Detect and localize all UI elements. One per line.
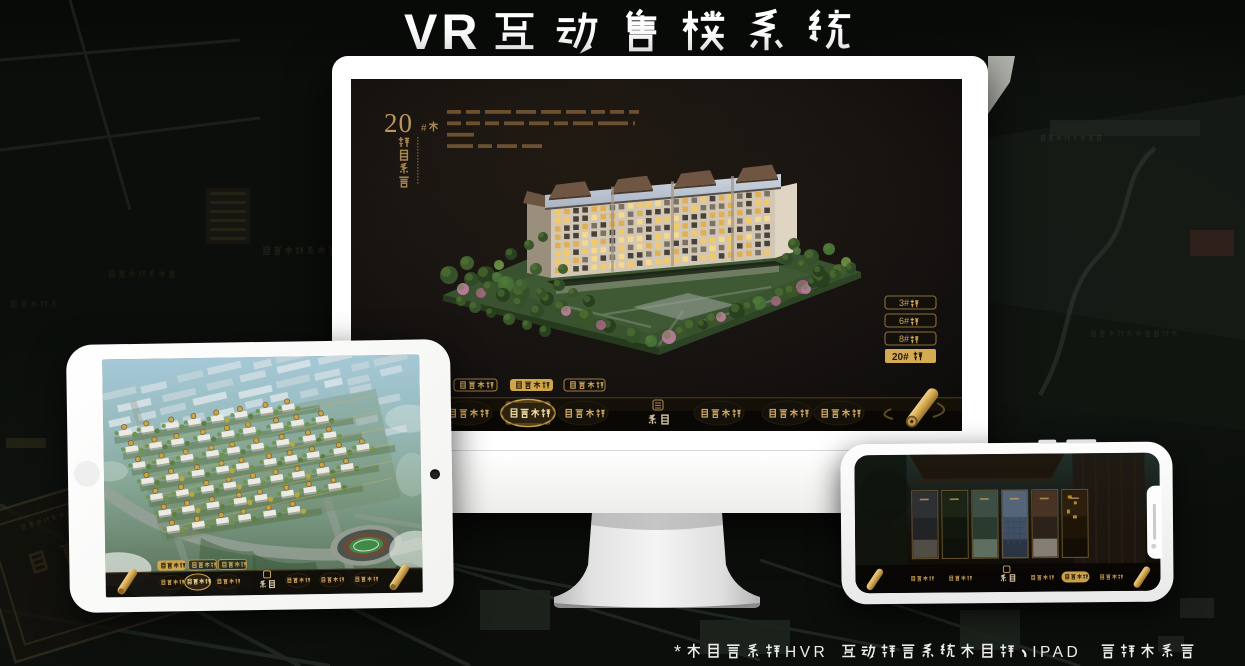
- svg-text:20#: 20#: [892, 352, 909, 363]
- svg-text:8#: 8#: [899, 334, 909, 344]
- svg-text:3#: 3#: [899, 298, 909, 308]
- svg-text:#: #: [421, 123, 427, 134]
- svg-text:*: *: [674, 642, 681, 662]
- svg-text:IPAD: IPAD: [1032, 644, 1081, 661]
- svg-text:VR: VR: [404, 4, 481, 60]
- svg-text:6#: 6#: [899, 316, 909, 326]
- svg-text:20: 20: [384, 108, 413, 138]
- svg-text:HVR: HVR: [785, 644, 828, 661]
